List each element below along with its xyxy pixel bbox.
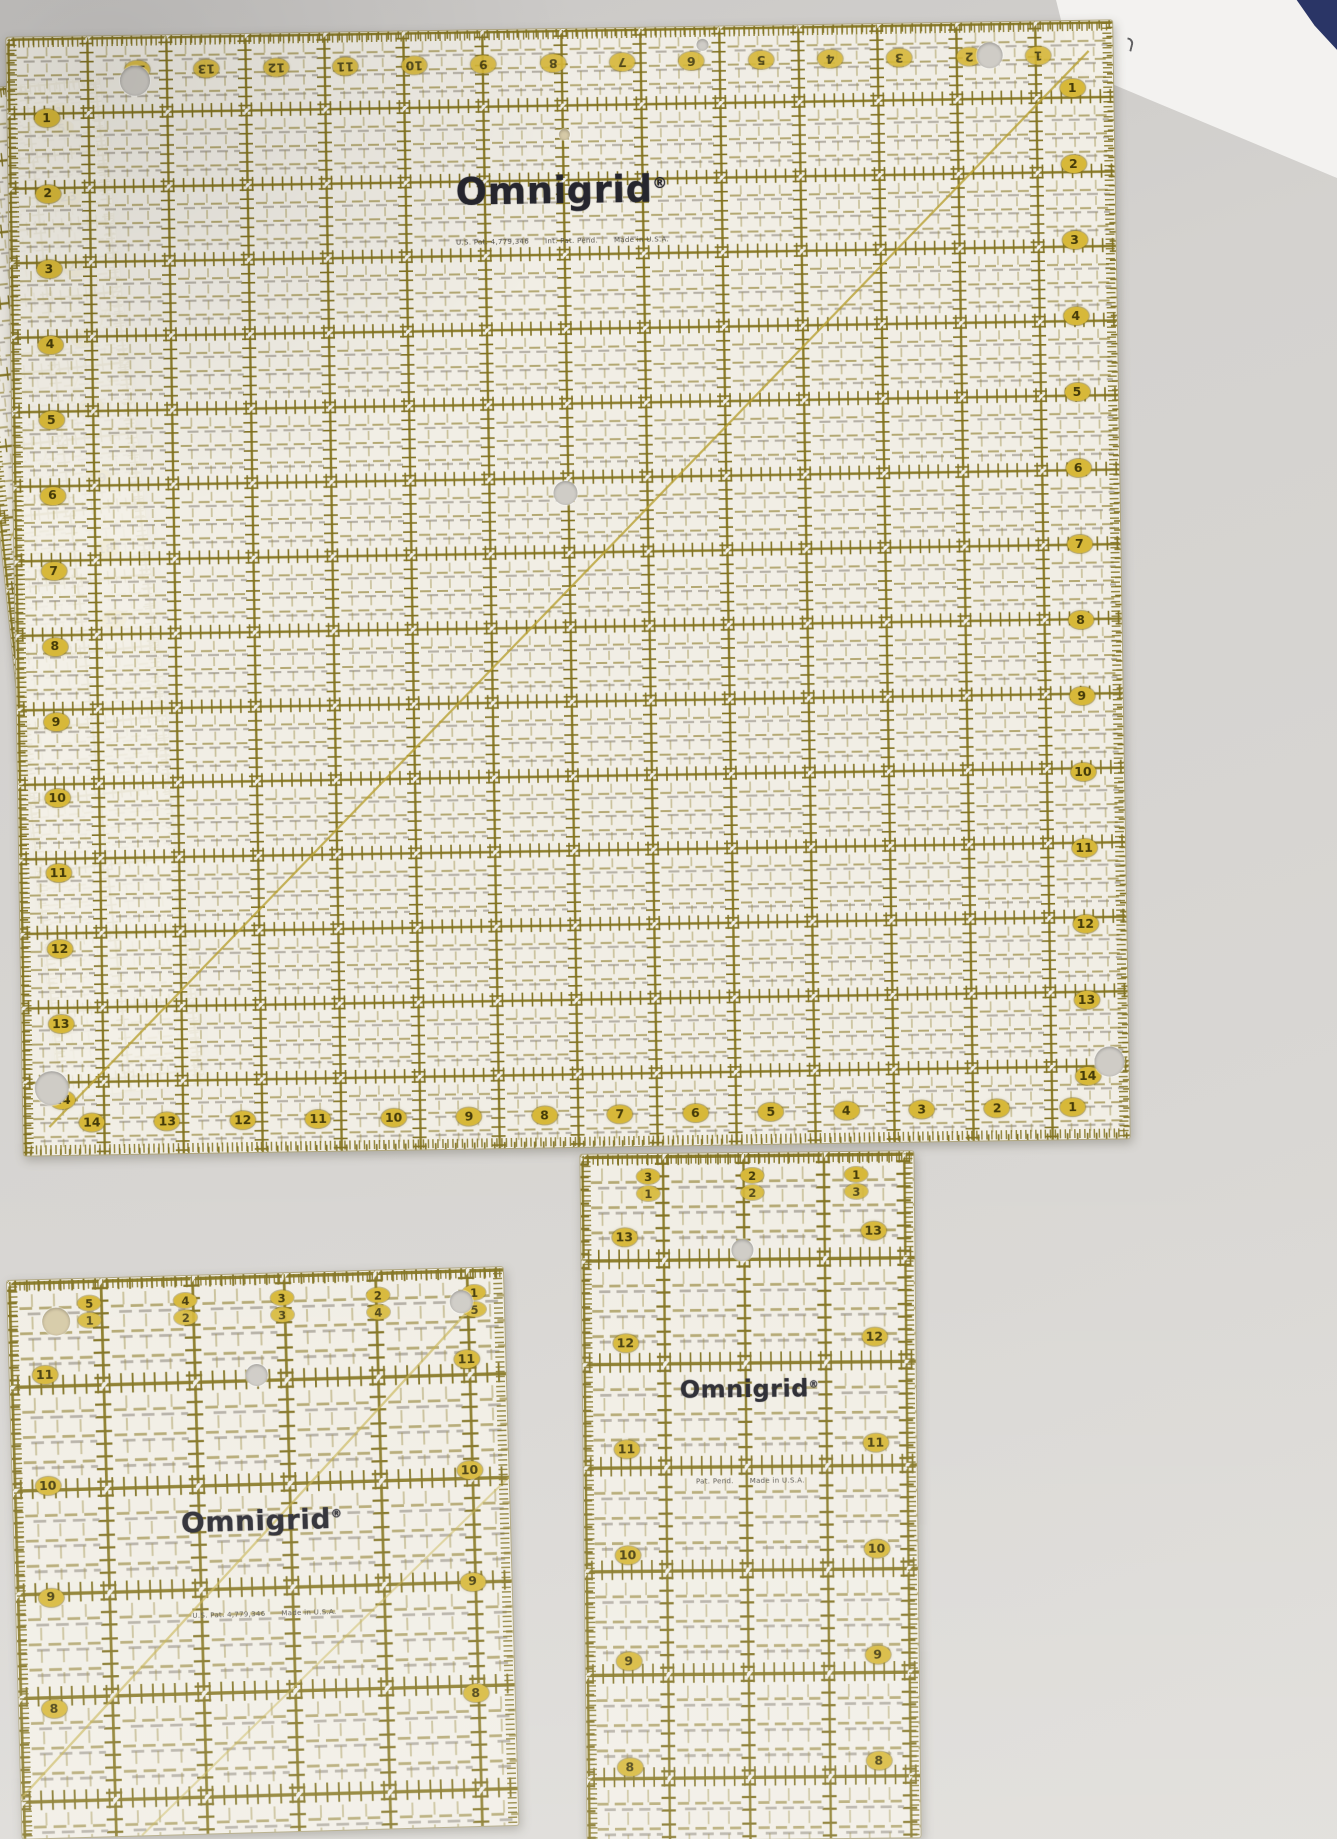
fine-print-line: Made in U.S.A.: [750, 1476, 805, 1485]
scale-number: 4: [1063, 307, 1088, 325]
scale-number: 11: [46, 864, 71, 882]
scale-fraction: 33: [270, 1290, 294, 1323]
fine-print-line: U.S. Pat. 4,779,346: [456, 238, 529, 247]
scale-number: 9: [38, 1588, 63, 1607]
small-square-ruler: 5142332415 111098 111098 Omnigrid® U.S. …: [6, 1266, 519, 1839]
scale-fraction: 22: [741, 1168, 764, 1200]
scale-fraction: 13: [845, 1167, 868, 1199]
scale-number: 8: [617, 1758, 642, 1776]
scale-number: 9: [456, 1107, 481, 1125]
scale-number: 10: [45, 789, 70, 807]
scale-number: 7: [1067, 535, 1092, 553]
scale-number: 10: [457, 1461, 482, 1480]
scale-number: 10: [402, 56, 427, 74]
small-dot: [559, 129, 570, 140]
scale-number: 9: [616, 1652, 641, 1670]
scale-number: 10: [1070, 763, 1095, 781]
brand-logo: Omnigrid®: [583, 1373, 916, 1404]
scale-number: 2: [985, 1099, 1010, 1117]
scale-number: 1: [1025, 46, 1050, 64]
scale-number: 6: [679, 52, 704, 70]
scale-number: 6: [40, 487, 65, 505]
scale-number: 12: [1073, 915, 1098, 933]
scale-number: 13: [612, 1228, 637, 1246]
fine-print-line: Made in U.S.A.: [614, 235, 669, 244]
scale-number: 9: [865, 1646, 890, 1664]
scale-number: 11: [614, 1440, 639, 1458]
scale-number: 4: [818, 50, 843, 68]
photo-scene: 1523222120191817 1413121110987654321 141…: [0, 0, 1337, 1839]
scale-number: 10: [615, 1546, 640, 1564]
stray-ink-mark: [1125, 37, 1135, 51]
large-square-ruler: 1413121110987654321 1413121110987654321 …: [5, 19, 1130, 1156]
scale-number: 13: [861, 1222, 886, 1240]
top-center-hole: [731, 1239, 753, 1261]
scale-number: 5: [1064, 383, 1089, 401]
scale-number: 13: [48, 1015, 73, 1033]
scale-number: 14: [79, 1113, 104, 1131]
scale-number: 11: [1072, 839, 1097, 857]
scale-fraction: 42: [174, 1293, 198, 1326]
scale-number: 11: [333, 57, 358, 75]
scale-number: 7: [607, 1105, 632, 1123]
scale-number: 6: [1066, 459, 1091, 477]
scale-number: 3: [887, 49, 912, 67]
scale-number: 1: [1060, 1098, 1085, 1116]
scale-number: 9: [1069, 687, 1094, 705]
scale-number: 5: [39, 411, 64, 429]
scale-number: 3: [36, 260, 61, 278]
scale-number: 1: [1060, 79, 1085, 97]
scale-number: 12: [230, 1111, 255, 1129]
scale-number: 8: [1068, 611, 1093, 629]
scale-number: 4: [37, 336, 62, 354]
scale-number: 13: [194, 59, 219, 77]
scale-number: 9: [460, 1572, 485, 1591]
scale-number: 1: [34, 109, 59, 127]
scale-number: 4: [834, 1101, 859, 1119]
scale-number: 9: [43, 713, 68, 731]
scale-number: 5: [758, 1103, 783, 1121]
scale-number: 10: [35, 1477, 60, 1496]
scale-number: 10: [864, 1540, 889, 1558]
scale-number: 11: [863, 1434, 888, 1452]
registered-mark: ®: [652, 175, 668, 192]
scale-number: 11: [306, 1110, 331, 1128]
scale-number: 8: [540, 54, 565, 72]
scale-number: 3: [909, 1100, 934, 1118]
scale-number: 7: [41, 562, 66, 580]
fine-print-line: Int. Pat. Pend.: [545, 236, 598, 245]
square-ruler-grid: [7, 1267, 518, 1839]
registered-mark: ®: [331, 1507, 343, 1520]
scale-number: 12: [47, 940, 72, 958]
tall-rect-ruler: 312213 1312111098 1312111098 Omnigrid® P…: [579, 1150, 921, 1839]
scale-number: 8: [866, 1752, 891, 1770]
registered-mark: ®: [809, 1379, 819, 1390]
scale-fraction: 51: [77, 1295, 101, 1328]
scale-number: 13: [155, 1112, 180, 1130]
scale-number: 11: [32, 1366, 57, 1385]
brand-name: Omnigrid: [680, 1374, 809, 1403]
scale-number: 13: [1074, 991, 1099, 1009]
scale-number: 8: [42, 638, 67, 656]
fine-print-line: Made in U.S.A.: [281, 1608, 336, 1618]
scale-fraction: 31: [637, 1169, 660, 1201]
brand-name: Omnigrid: [455, 168, 653, 214]
scale-number: 12: [862, 1328, 887, 1346]
scale-number: 8: [463, 1684, 488, 1703]
scale-number: 5: [748, 51, 773, 69]
scale-number: 12: [263, 58, 288, 76]
paper-corner-navy: [1281, 0, 1337, 64]
scale-number: 11: [454, 1350, 479, 1369]
scale-number: 7: [610, 53, 635, 71]
brand-name: Omnigrid: [181, 1502, 332, 1539]
scale-number: 10: [381, 1109, 406, 1127]
tall-ruler-header-scale: 312213: [637, 1164, 868, 1204]
scale-number: 6: [683, 1104, 708, 1122]
scale-fraction: 24: [366, 1287, 390, 1320]
scale-number: 8: [532, 1106, 557, 1124]
scale-number: 12: [613, 1334, 638, 1352]
fine-print-line: Pat. Pend.: [696, 1477, 734, 1485]
scale-number: 8: [41, 1699, 66, 1718]
scale-number: 9: [471, 55, 496, 73]
